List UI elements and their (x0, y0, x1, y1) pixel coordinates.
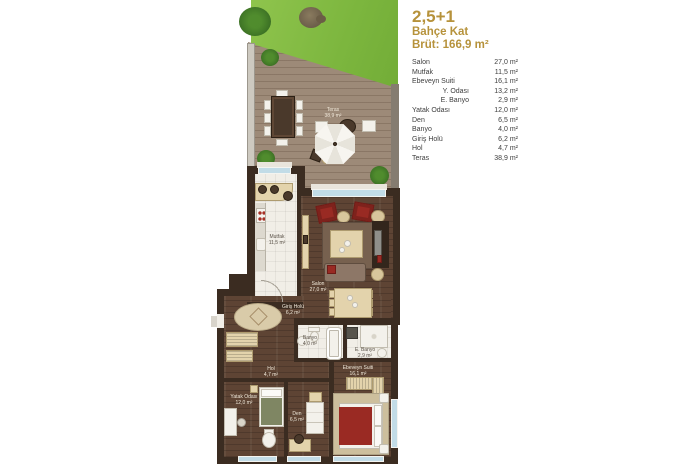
den-sofa (306, 402, 324, 434)
washer-icon (346, 327, 358, 339)
hall-cabinet (226, 332, 258, 347)
table-decor (347, 295, 353, 301)
table-decor (352, 302, 358, 308)
room-list-row: Hol4,7 m² (412, 144, 518, 154)
shower-icon (360, 325, 388, 348)
bar-stool (258, 185, 267, 194)
plan-type-title: 2,5+1 (412, 8, 518, 26)
tv-decor (377, 255, 382, 263)
sofa-cushion (327, 265, 336, 274)
terrace-chair (296, 126, 303, 136)
window-salon-terrace (312, 189, 386, 197)
terrace-chair (264, 126, 271, 136)
terrace-chair (264, 100, 271, 110)
window-den-bottom (287, 456, 321, 462)
room-label-hol: Hol4,7 m² (264, 367, 278, 378)
window-ebeveyn-right (391, 399, 398, 448)
room-label-den: Den6,5 m² (290, 412, 304, 423)
room-list-row: Salon27,0 m² (412, 58, 518, 68)
entry-door-opening (217, 314, 224, 328)
terrace-dining-table (271, 96, 295, 138)
wall-banyo-bottom (294, 358, 398, 362)
room-label-banyo: Banyo4,0 m² (303, 336, 317, 347)
terrace-chair (264, 113, 271, 123)
desk (224, 408, 237, 436)
wall-salon-bottom (294, 318, 400, 325)
floor-name: Bahçe Kat (412, 26, 518, 39)
salon-vase (303, 235, 308, 244)
room-label-ebanyo: E. Banyo2,9 m² (355, 348, 375, 359)
kitchen-door-arc (261, 279, 284, 302)
terrace-fence-left (247, 43, 255, 171)
entry-step (211, 316, 217, 327)
bar-stool (270, 185, 279, 194)
room-list-row: Banyo4,0 m² (412, 125, 518, 135)
nightstand (250, 385, 258, 393)
bed-blanket (261, 398, 282, 425)
gross-area: Brüt: 166,9 m² (412, 39, 518, 52)
chair-seat (262, 432, 276, 448)
table-decor (339, 247, 345, 253)
legend-panel: 2,5+1 Bahçe Kat Brüt: 166,9 m² Salon27,0… (412, 8, 518, 164)
terrace-chair (296, 100, 303, 110)
tv-screen-icon (374, 230, 382, 256)
kitchen-sink-icon (256, 238, 266, 251)
window-yatak-bottom (238, 456, 277, 462)
den-chair (294, 434, 304, 444)
umbrella-pole (333, 142, 337, 146)
bar-stool (283, 191, 293, 201)
bed-pillows (374, 405, 382, 447)
terrace-chair (296, 113, 303, 123)
wall-chimney (229, 274, 248, 292)
wall-yatak-den (284, 378, 288, 457)
nightstand (379, 393, 389, 403)
room-label-teras: Teras38,9 m² (325, 108, 342, 119)
sink-icon (377, 348, 387, 358)
floor-plan: Teras38,9 m² Mutfak11,5 m² Salon27,0 m² … (0, 0, 700, 466)
bed-pillow (261, 389, 282, 397)
room-label-ebeveyn: Ebeveyn Suiti16,1 m² (343, 366, 374, 377)
room-label-giris: Giriş Holü6,2 m² (282, 305, 304, 316)
window-kitchen-top (258, 167, 291, 174)
terrace-plant-3 (370, 166, 389, 185)
terrace-plant-1 (261, 49, 279, 66)
wall-hol-bedrooms (224, 378, 330, 382)
terrace-wall-right (391, 84, 399, 192)
room-list-row: Mutfak11,5 m² (412, 68, 518, 78)
room-label-mutfak: Mutfak11,5 m² (269, 235, 286, 246)
nightstand (379, 444, 389, 454)
hall-cabinet (226, 350, 253, 362)
room-label-yatak: Yatak Odası12,0 m² (230, 395, 257, 406)
room-list-row: Ebeveyn Suiti16,1 m² (412, 77, 518, 87)
bed-blanket-red (339, 407, 372, 445)
room-list-row: Teras38,9 m² (412, 154, 518, 164)
window-ebeveyn-bottom (333, 456, 384, 462)
room-label-salon: Salon27,0 m² (310, 282, 327, 293)
room-list-row: Y. Odası13,2 m² (412, 87, 518, 97)
room-list-row: E. Banyo2,9 m² (412, 96, 518, 106)
stove-icon (256, 208, 266, 223)
terrace-chair (276, 139, 288, 146)
garden-bush-icon (239, 7, 271, 36)
bathtub-icon (326, 327, 342, 360)
room-list-row: Den6,5 m² (412, 116, 518, 126)
garden-rock-small-icon (316, 15, 326, 23)
terrace-lounge-chair (362, 120, 376, 132)
desk-chair (237, 418, 246, 427)
table-decor (344, 240, 351, 247)
den-side-table (309, 392, 322, 402)
room-list-row: Yatak Odası12,0 m² (412, 106, 518, 116)
room-list-row: Giriş Holü6,2 m² (412, 135, 518, 145)
room-list: Salon27,0 m² Mutfak11,5 m² Ebeveyn Suiti… (412, 58, 518, 164)
pouf (371, 268, 384, 281)
